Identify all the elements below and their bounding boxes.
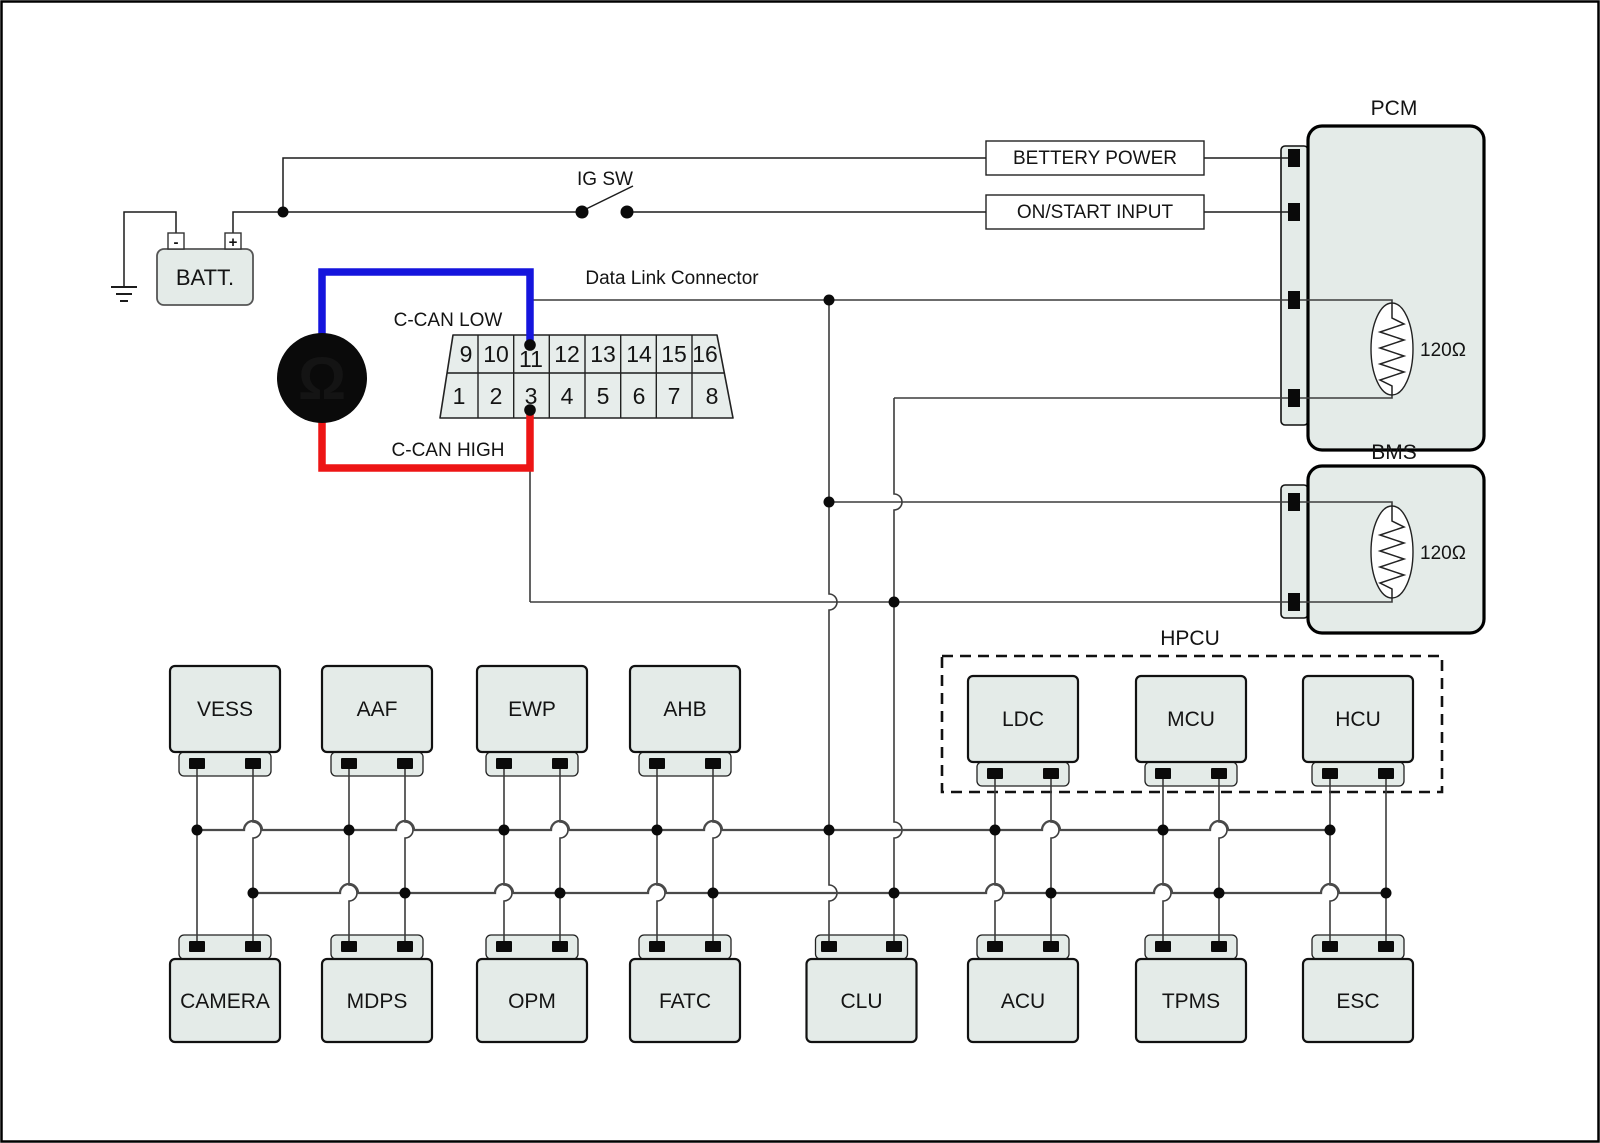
data-link-connector: 91011121314151612345678 bbox=[440, 335, 733, 418]
battery-label: BATT. bbox=[176, 265, 234, 290]
dlc-pin-number-15: 15 bbox=[661, 341, 687, 367]
module-ahb-pin-left bbox=[649, 758, 665, 769]
bms-ecu: 120Ω BMS bbox=[1281, 441, 1484, 633]
dlc-pin3-junction bbox=[524, 404, 536, 416]
pcm-body bbox=[1308, 126, 1484, 450]
dlc-pin-number-14: 14 bbox=[626, 341, 652, 367]
bms-pin-can-low bbox=[1288, 493, 1300, 511]
pcm-pin-can-high bbox=[1288, 389, 1300, 407]
module-label-fatc: FATC bbox=[659, 990, 711, 1013]
pcm-resistor-value: 120Ω bbox=[1420, 340, 1466, 361]
dlc-pin-number-16: 16 bbox=[692, 341, 718, 367]
module-ewp-pin-left bbox=[496, 758, 512, 769]
dlc-pin-number-8: 8 bbox=[706, 383, 719, 409]
module-camera-pin-right bbox=[245, 941, 261, 952]
module-opm-pin-left bbox=[496, 941, 512, 952]
module-label-acu: ACU bbox=[1001, 990, 1045, 1013]
bms-pin-can-high bbox=[1288, 593, 1300, 611]
module-ldc-pin-left bbox=[987, 768, 1003, 779]
pcm-connector-strip bbox=[1281, 146, 1308, 425]
module-mcu-pin-left bbox=[1155, 768, 1171, 779]
module-mdps-pin-left bbox=[341, 941, 357, 952]
can-bus-wiring-diagram: 120Ω PCM 120Ω BMS HPCU 91011121314151612… bbox=[0, 0, 1600, 1143]
module-label-opm: OPM bbox=[508, 990, 556, 1013]
module-camera-pin-left bbox=[189, 941, 205, 952]
module-acu-pin-left bbox=[987, 941, 1003, 952]
dlc-pin-number-6: 6 bbox=[633, 383, 646, 409]
battery-power-label: BETTERY POWER bbox=[1013, 148, 1177, 169]
bms-title: BMS bbox=[1371, 441, 1417, 464]
module-esc-pin-right bbox=[1378, 941, 1394, 952]
module-acu-pin-right bbox=[1043, 941, 1059, 952]
module-clu-pin-left bbox=[821, 941, 837, 952]
module-ldc-pin-right bbox=[1043, 768, 1059, 779]
hpcu-title: HPCU bbox=[1160, 627, 1220, 650]
module-opm-pin-right bbox=[552, 941, 568, 952]
module-label-mdps: MDPS bbox=[347, 990, 408, 1013]
pcm-pin-can-low bbox=[1288, 291, 1300, 309]
module-label-ewp: EWP bbox=[508, 698, 556, 721]
battery-positive-sign: + bbox=[229, 234, 238, 251]
module-label-tpms: TPMS bbox=[1162, 990, 1220, 1013]
c-can-low-label: C-CAN LOW bbox=[394, 310, 503, 331]
dlc-pin-number-9: 9 bbox=[460, 341, 473, 367]
module-hcu-pin-right bbox=[1378, 768, 1394, 779]
ignition-switch-label: IG SW bbox=[577, 169, 633, 190]
dlc-pin-number-4: 4 bbox=[561, 383, 574, 409]
module-label-clu: CLU bbox=[840, 990, 882, 1013]
module-tpms-pin-right bbox=[1211, 941, 1227, 952]
pcm-pin-on-start bbox=[1288, 203, 1300, 221]
module-tpms-pin-left bbox=[1155, 941, 1171, 952]
module-vess-pin-right bbox=[245, 758, 261, 769]
module-aaf-pin-right bbox=[397, 758, 413, 769]
bms-resistor-value: 120Ω bbox=[1420, 543, 1466, 564]
dlc-pin-number-10: 10 bbox=[483, 341, 509, 367]
module-label-aaf: AAF bbox=[357, 698, 398, 721]
module-clu-pin-right bbox=[886, 941, 902, 952]
battery-negative-sign: - bbox=[174, 234, 179, 251]
module-fatc-pin-right bbox=[705, 941, 721, 952]
module-vess-pin-left bbox=[189, 758, 205, 769]
dlc-pin-number-7: 7 bbox=[668, 383, 681, 409]
wiring-diagram-canvas: 120Ω PCM 120Ω BMS HPCU 91011121314151612… bbox=[0, 0, 1600, 1143]
dlc-pin-number-2: 2 bbox=[490, 383, 503, 409]
module-label-vess: VESS bbox=[197, 698, 253, 721]
module-fatc-pin-left bbox=[649, 941, 665, 952]
pcm-pin-battery-power bbox=[1288, 149, 1300, 167]
module-aaf-pin-left bbox=[341, 758, 357, 769]
ohm-meter-symbol: Ω bbox=[298, 345, 346, 412]
dlc-pin-number-5: 5 bbox=[597, 383, 610, 409]
dlc-title: Data Link Connector bbox=[585, 268, 759, 289]
ignition-switch-contact-right bbox=[621, 206, 634, 219]
pcm-title: PCM bbox=[1371, 97, 1418, 120]
module-esc-pin-left bbox=[1322, 941, 1338, 952]
module-label-ldc: LDC bbox=[1002, 708, 1044, 731]
dlc-pin-number-12: 12 bbox=[554, 341, 580, 367]
dlc-pin-number-13: 13 bbox=[590, 341, 616, 367]
module-label-ahb: AHB bbox=[663, 698, 706, 721]
module-label-camera: CAMERA bbox=[180, 990, 270, 1013]
on-start-label: ON/START INPUT bbox=[1017, 202, 1174, 223]
c-can-high-label: C-CAN HIGH bbox=[392, 440, 505, 461]
module-ahb-pin-right bbox=[705, 758, 721, 769]
dlc-pin11-junction bbox=[524, 339, 536, 351]
module-ewp-pin-right bbox=[552, 758, 568, 769]
dlc-pin-number-1: 1 bbox=[453, 383, 466, 409]
module-label-esc: ESC bbox=[1336, 990, 1379, 1013]
module-label-mcu: MCU bbox=[1167, 708, 1215, 731]
module-label-hcu: HCU bbox=[1335, 708, 1381, 731]
module-mcu-pin-right bbox=[1211, 768, 1227, 779]
module-hcu-pin-left bbox=[1322, 768, 1338, 779]
module-mdps-pin-right bbox=[397, 941, 413, 952]
pcm-ecu: 120Ω PCM bbox=[1281, 97, 1484, 450]
ignition-switch-contact-left bbox=[576, 206, 589, 219]
